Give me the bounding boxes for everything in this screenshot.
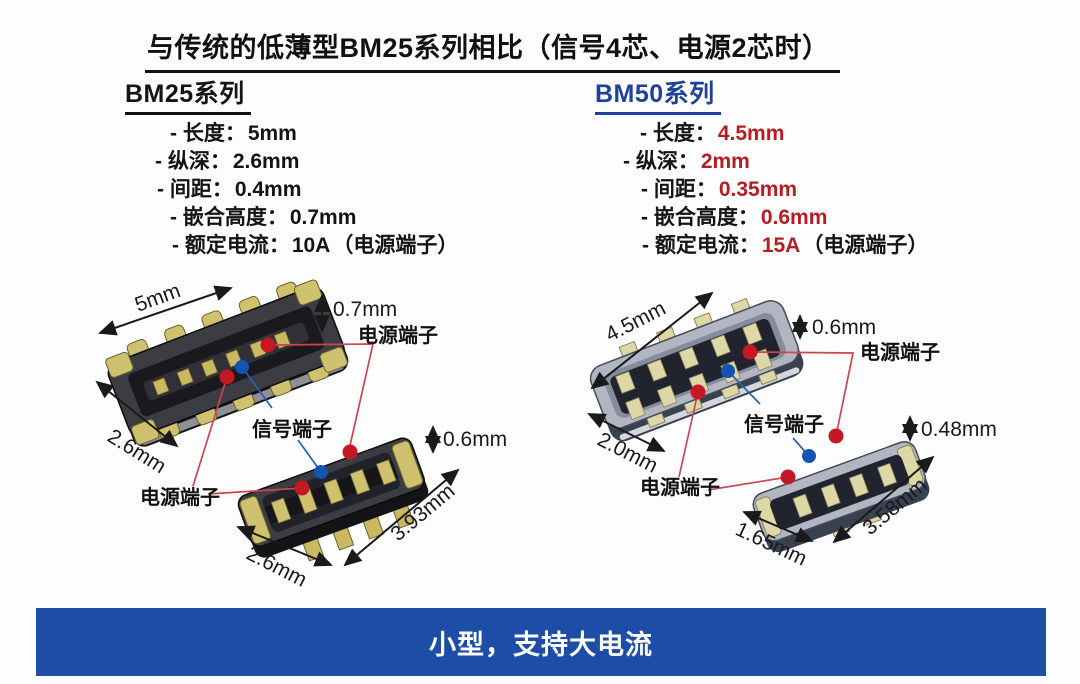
signal-terminal-dot (314, 465, 328, 479)
power-terminal-label: 电源端子 (640, 476, 720, 499)
spec-label: - 长度： (640, 122, 716, 145)
spec-label: - 嵌合高度： (170, 206, 288, 229)
signal-terminal-label: 信号端子 (744, 412, 824, 436)
power-terminal-dot (691, 385, 706, 400)
bm50-spec-list: - 长度：4.5mm - 纵深：2mm - 间距：0.35mm - 嵌合高度：0… (595, 120, 1025, 260)
bm25-column: BM25系列 - 长度：5mm - 纵深：2.6mm - 间距：0.4mm - … (125, 74, 555, 260)
power-terminal-dot (743, 345, 758, 360)
signal-terminal-dot (802, 449, 816, 463)
banner-text: 小型，支持大电流 (429, 623, 653, 662)
spec-label: - 间距： (157, 178, 233, 201)
comparison-diagram: 5mm 0.7mm 2.6mm 0.6mm 3.93mm 2.6mm 电源端子 … (0, 268, 1080, 600)
spec-label: - 长度： (170, 122, 246, 145)
spec-row-length: - 长度：4.5mm (640, 120, 1025, 148)
spec-value: 0.6mm (761, 206, 828, 229)
bm50-heading: BM50系列 (595, 74, 721, 115)
spec-row-length: - 长度：5mm (170, 120, 555, 148)
dim-length-bm25: 5mm (132, 279, 184, 317)
spec-row-pitch: - 间距：0.35mm (641, 176, 1025, 204)
bm50-column: BM50系列 - 长度：4.5mm - 纵深：2mm - 间距：0.35mm -… (595, 74, 1025, 260)
slide: 与传统的低薄型BM25系列相比（信号4芯、电源2芯时） BM25系列 - 长度：… (0, 0, 1080, 684)
power-terminal-dot (829, 429, 844, 444)
signal-terminal-label: 信号端子 (252, 417, 332, 441)
spec-value: 10A (292, 234, 331, 257)
spec-label: - 嵌合高度： (641, 206, 759, 229)
power-terminal-label: 电源端子 (140, 486, 220, 509)
power-terminal-dot (261, 338, 276, 353)
spec-row-depth: - 纵深：2mm (623, 148, 1025, 176)
spec-value: 15A (762, 234, 801, 257)
spec-row-pitch: - 间距：0.4mm (157, 176, 555, 204)
signal-terminal-dot (235, 360, 249, 374)
spec-value: 2.6mm (233, 150, 300, 173)
bm25-spec-list: - 长度：5mm - 纵深：2.6mm - 间距：0.4mm - 嵌合高度：0.… (125, 120, 555, 260)
bottom-banner: 小型，支持大电流 (36, 608, 1046, 676)
power-terminal-label: 电源端子 (358, 324, 438, 347)
spec-value: 5mm (248, 122, 297, 145)
spec-label: - 纵深： (623, 150, 699, 173)
spec-value: 0.7mm (290, 206, 357, 229)
spec-suffix: （电源端子） (332, 234, 458, 257)
dim-mating-height-bm25: 0.7mm (333, 298, 397, 321)
power-terminal-dot (343, 445, 358, 460)
dim-mating-height-bm50: 0.6mm (812, 316, 876, 339)
power-terminal-dot (781, 470, 796, 485)
spec-row-depth: - 纵深：2.6mm (155, 148, 555, 176)
spec-row-mating-height: - 嵌合高度：0.7mm (170, 204, 555, 232)
spec-label: - 额定电流： (172, 234, 290, 257)
spec-value: 4.5mm (718, 122, 785, 145)
bm25-heading: BM25系列 (125, 74, 251, 115)
power-terminal-dot (220, 370, 235, 385)
spec-label: - 纵深： (155, 150, 231, 173)
power-terminal-label: 电源端子 (860, 341, 940, 364)
spec-columns: BM25系列 - 长度：5mm - 纵深：2.6mm - 间距：0.4mm - … (0, 74, 1080, 260)
spec-value: 0.4mm (235, 178, 302, 201)
spec-label: - 间距： (641, 178, 717, 201)
spec-row-rated-current: - 额定电流：15A（电源端子） (642, 232, 1025, 260)
spec-label: - 额定电流： (642, 234, 760, 257)
spec-row-mating-height: - 嵌合高度：0.6mm (641, 204, 1025, 232)
power-terminal-dot (295, 481, 310, 496)
spec-value: 0.35mm (719, 178, 797, 201)
page-title: 与传统的低薄型BM25系列相比（信号4芯、电源2芯时） (145, 26, 840, 73)
spec-suffix: （电源端子） (802, 234, 928, 257)
signal-terminal-dot (721, 364, 735, 378)
dim-plug-height-bm50: 0.48mm (921, 418, 997, 441)
dim-plug-height-bm25: 0.6mm (443, 428, 507, 451)
spec-value: 2mm (701, 150, 750, 173)
spec-row-rated-current: - 额定电流：10A（电源端子） (172, 232, 555, 260)
